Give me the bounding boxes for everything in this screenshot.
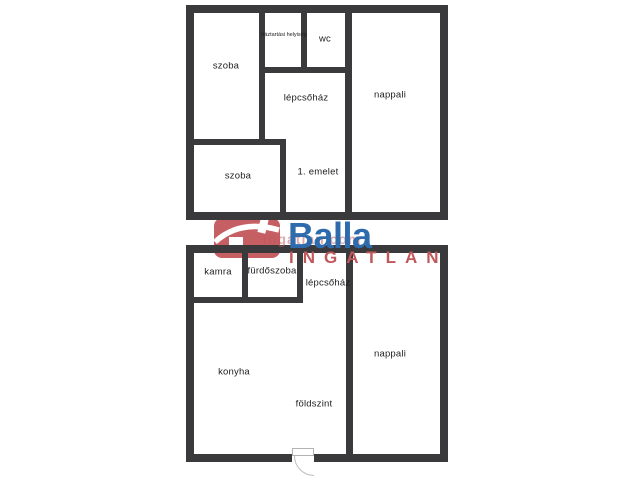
upper-room-haztartasi-label: háztartási helyiség	[261, 32, 307, 38]
upper-wall-szoba2-top	[194, 139, 286, 145]
upper-wall-haztartasi-wc-divider	[301, 13, 307, 70]
upper-room-szoba1-label: szoba	[213, 61, 239, 72]
ground-room-lepcsohaz-label: lépcsőház	[306, 278, 351, 289]
floorplan-image: szoba háztartási helyiség wc lépcsőház n…	[0, 0, 640, 480]
ground-outer-wall-right	[440, 245, 448, 462]
ground-room-konyha-label: konyha	[218, 367, 250, 378]
upper-wall-szoba2-right	[280, 139, 286, 212]
ingatlan-logo-subtitle: INGATLAN	[289, 248, 448, 268]
upper-room-wc-label: wc	[319, 34, 331, 45]
ground-wall-below-kamra-furdo	[194, 297, 303, 303]
upper-room-nappali-label: nappali	[374, 90, 406, 101]
upper-wall-below-wc	[259, 67, 351, 73]
upper-outer-wall-top	[186, 5, 448, 13]
ground-room-kamra-label: kamra	[204, 267, 231, 278]
upper-outer-wall-right	[440, 5, 448, 220]
ground-room-nappali-label: nappali	[374, 349, 406, 360]
upper-room-lepcsohaz-label: lépcsőház	[284, 93, 329, 104]
upper-level-label: 1. emelet	[298, 167, 339, 178]
ground-level-label: földszint	[296, 399, 333, 410]
entrance-door-swing-arc	[294, 456, 314, 476]
upper-room-szoba2-label: szoba	[225, 171, 251, 182]
ground-outer-wall-bottom	[186, 454, 448, 462]
upper-wall-nappali-left	[345, 13, 352, 212]
ground-outer-wall-left	[186, 245, 194, 462]
upper-outer-wall-left	[186, 5, 194, 220]
entrance-door-leaf	[292, 448, 314, 456]
